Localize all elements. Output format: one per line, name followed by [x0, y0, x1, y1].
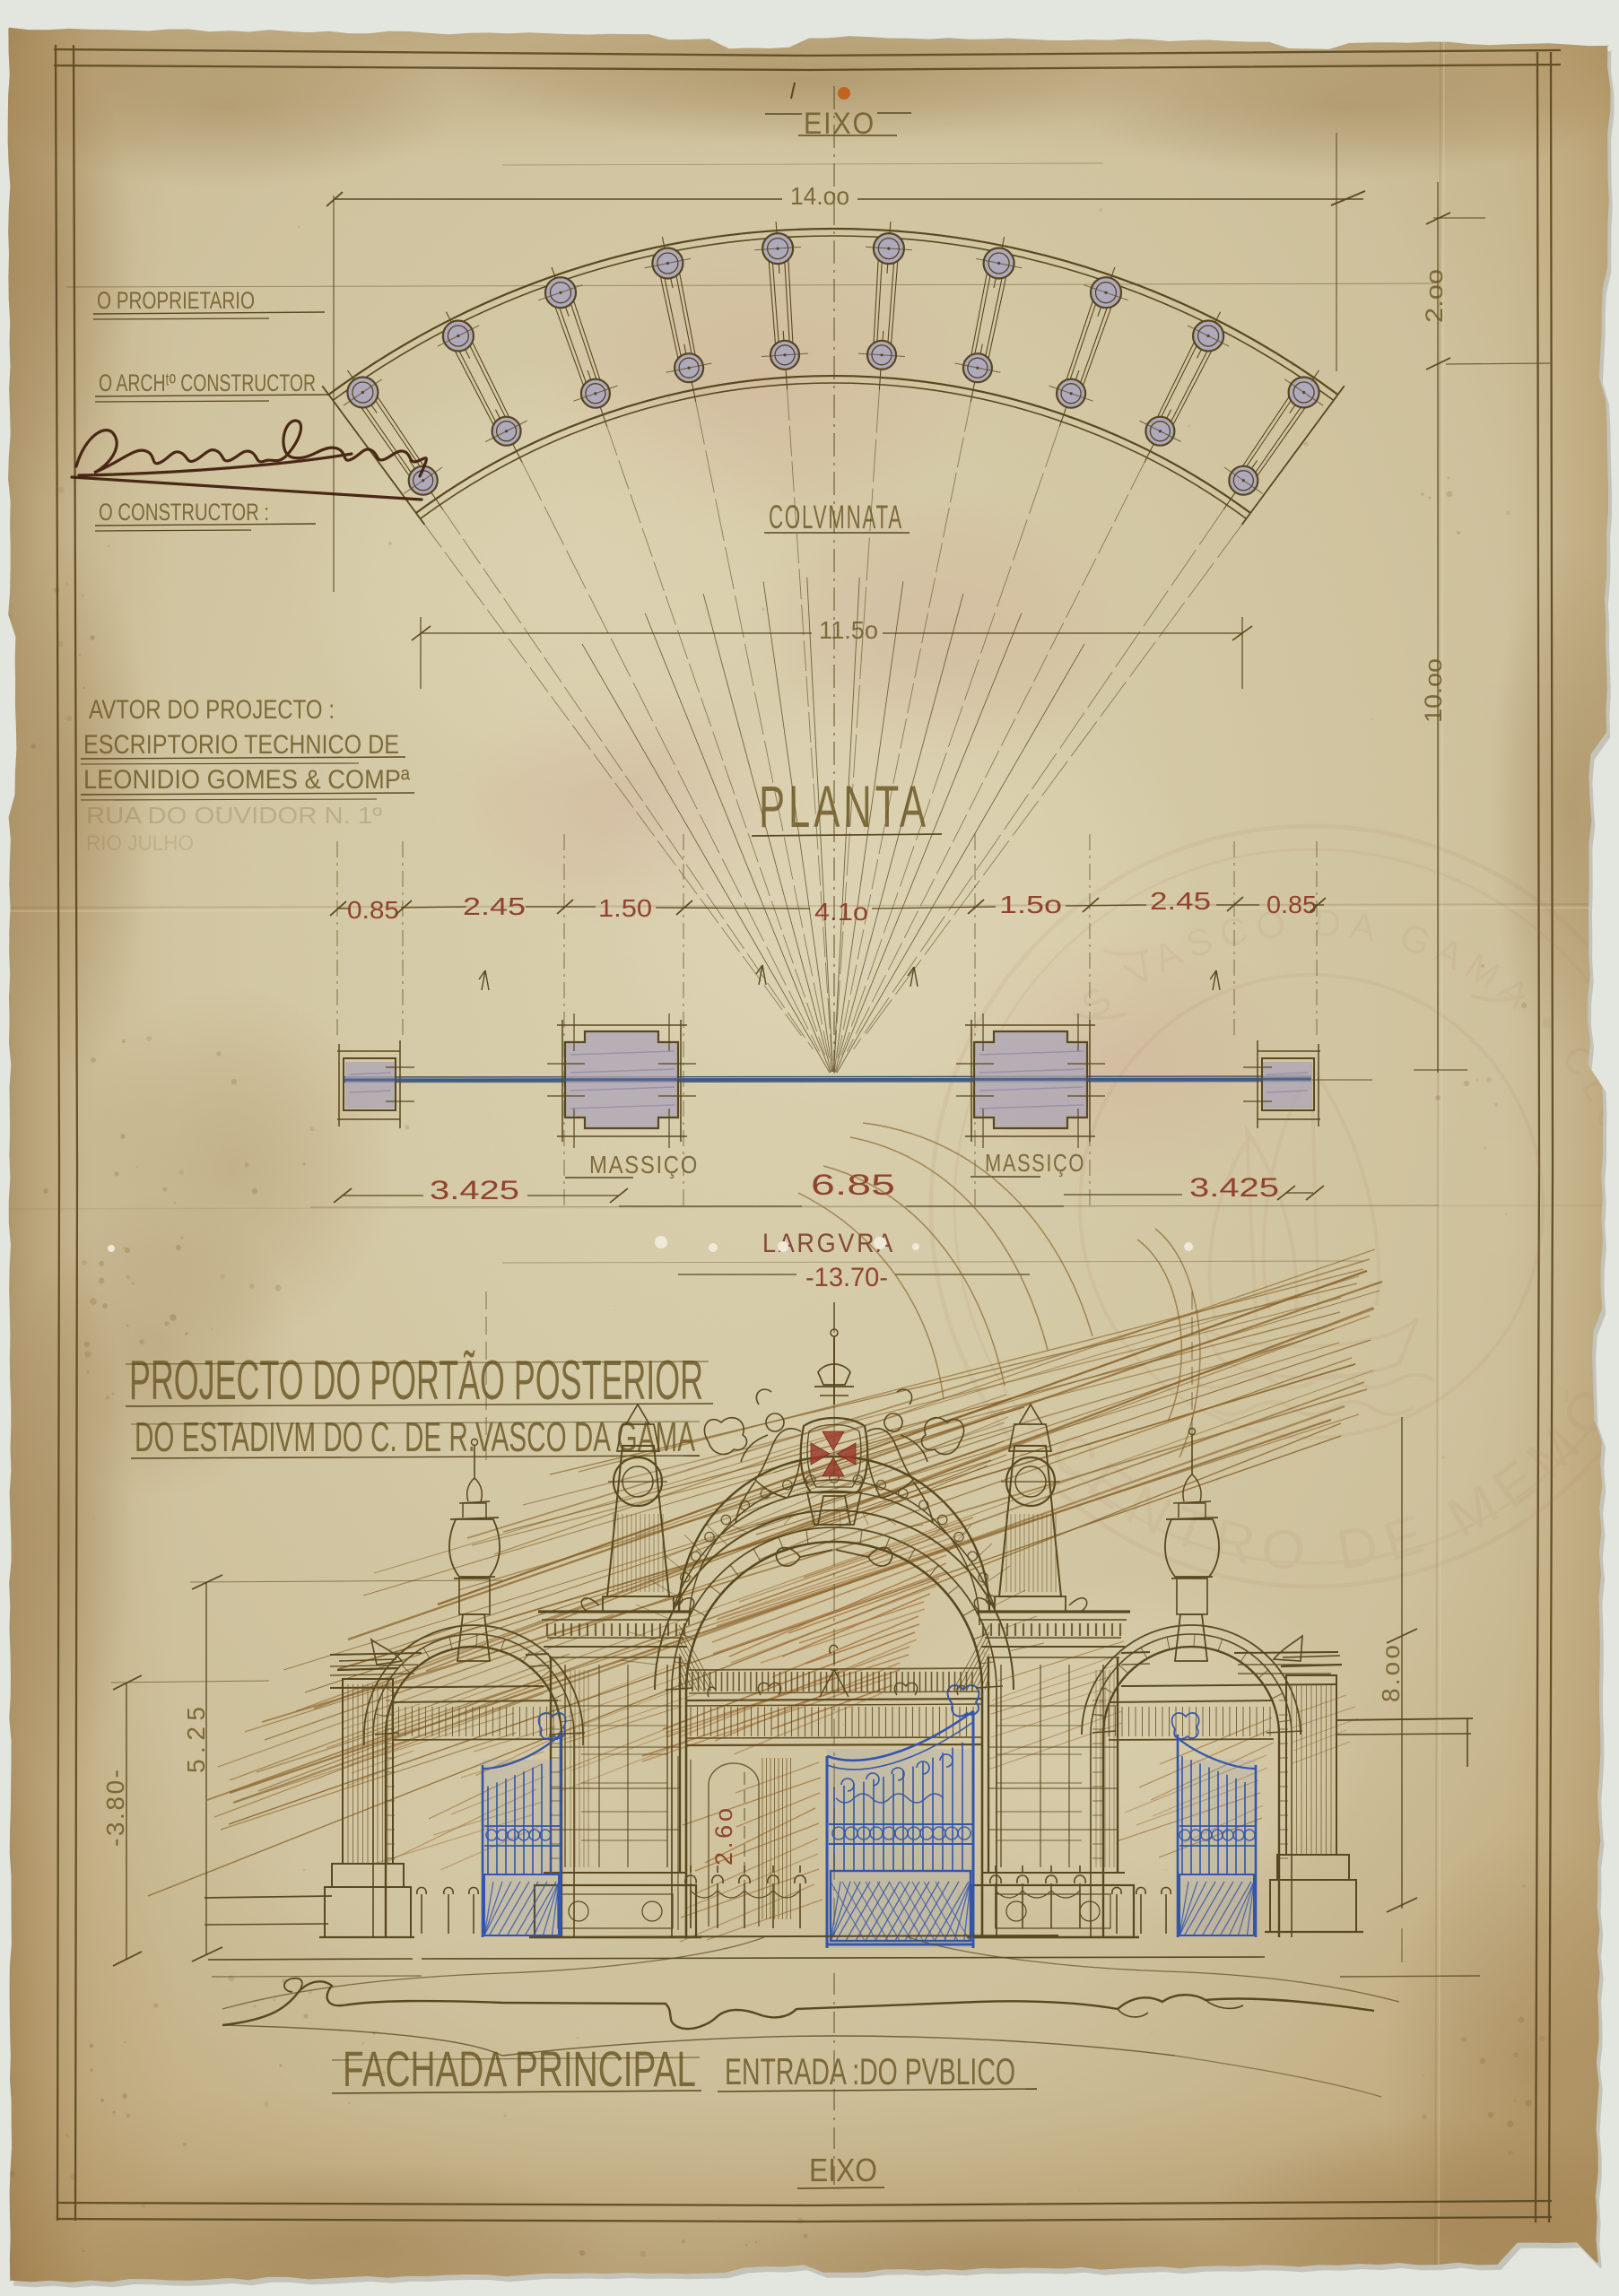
svg-text:DO ESTADIVM DO C. DE R.VASCO D: DO ESTADIVM DO C. DE R.VASCO DA GAMA	[135, 1413, 695, 1460]
svg-text:RUA DO OUVIDOR N. 1º: RUA DO OUVIDOR N. 1º	[86, 802, 383, 829]
svg-text:O PROPRIETARIO: O PROPRIETARIO	[97, 287, 255, 314]
svg-text:-3.80-: -3.80-	[101, 1770, 129, 1847]
svg-text:0.85: 0.85	[1266, 891, 1317, 918]
svg-text:COLVMNATA: COLVMNATA	[769, 499, 903, 535]
svg-text:6.85: 6.85	[811, 1169, 895, 1201]
svg-text:2.oo: 2.oo	[1421, 269, 1448, 323]
svg-text:1.50: 1.50	[598, 894, 652, 922]
svg-text:LEONIDIO GOMES & COMPª: LEONIDIO GOMES & COMPª	[83, 765, 411, 795]
svg-text:14.oo: 14.oo	[790, 182, 849, 210]
svg-text:PLANTA: PLANTA	[759, 773, 929, 839]
svg-text:RIO JULHO: RIO JULHO	[86, 831, 194, 856]
svg-text:3.425: 3.425	[430, 1176, 519, 1205]
svg-text:11.5o: 11.5o	[819, 616, 878, 644]
svg-text:2.6o: 2.6o	[710, 1808, 737, 1865]
svg-text:ENTRADA :DO PVBLICO: ENTRADA :DO PVBLICO	[725, 2050, 1015, 2092]
svg-text:O ARCHᵗº CONSTRUCTOR: O ARCHᵗº CONSTRUCTOR	[99, 370, 316, 396]
svg-text:ESCRIPTORIO TECHNICO DE: ESCRIPTORIO TECHNICO DE	[83, 730, 399, 760]
svg-text:3.425: 3.425	[1189, 1173, 1279, 1203]
svg-text:10.oo: 10.oo	[1420, 658, 1447, 723]
svg-text:-13.70-: -13.70-	[805, 1263, 888, 1292]
svg-text:0.85: 0.85	[347, 896, 399, 924]
svg-text:FACHADA PRINCIPAL: FACHADA PRINCIPAL	[343, 2040, 696, 2097]
svg-text:8.oo: 8.oo	[1377, 1645, 1405, 1702]
svg-text:2.45: 2.45	[463, 892, 526, 920]
svg-text:MASSIÇO: MASSIÇO	[589, 1151, 699, 1178]
svg-text:1.5o: 1.5o	[999, 891, 1062, 918]
svg-text:MASSIÇO: MASSIÇO	[985, 1149, 1085, 1177]
svg-text:2.45: 2.45	[1150, 887, 1211, 915]
svg-text:AVTOR DO PROJECTO :: AVTOR DO PROJECTO :	[89, 695, 335, 725]
svg-text:4.1o: 4.1o	[814, 898, 868, 926]
svg-text:O CONSTRUCTOR :: O CONSTRUCTOR :	[99, 499, 269, 526]
svg-text:PROJECTO DO PORTÃO POSTERIOR: PROJECTO DO PORTÃO POSTERIOR	[129, 1350, 703, 1412]
svg-text:5.25: 5.25	[182, 1707, 210, 1773]
svg-text:EIXO: EIXO	[809, 2152, 877, 2188]
